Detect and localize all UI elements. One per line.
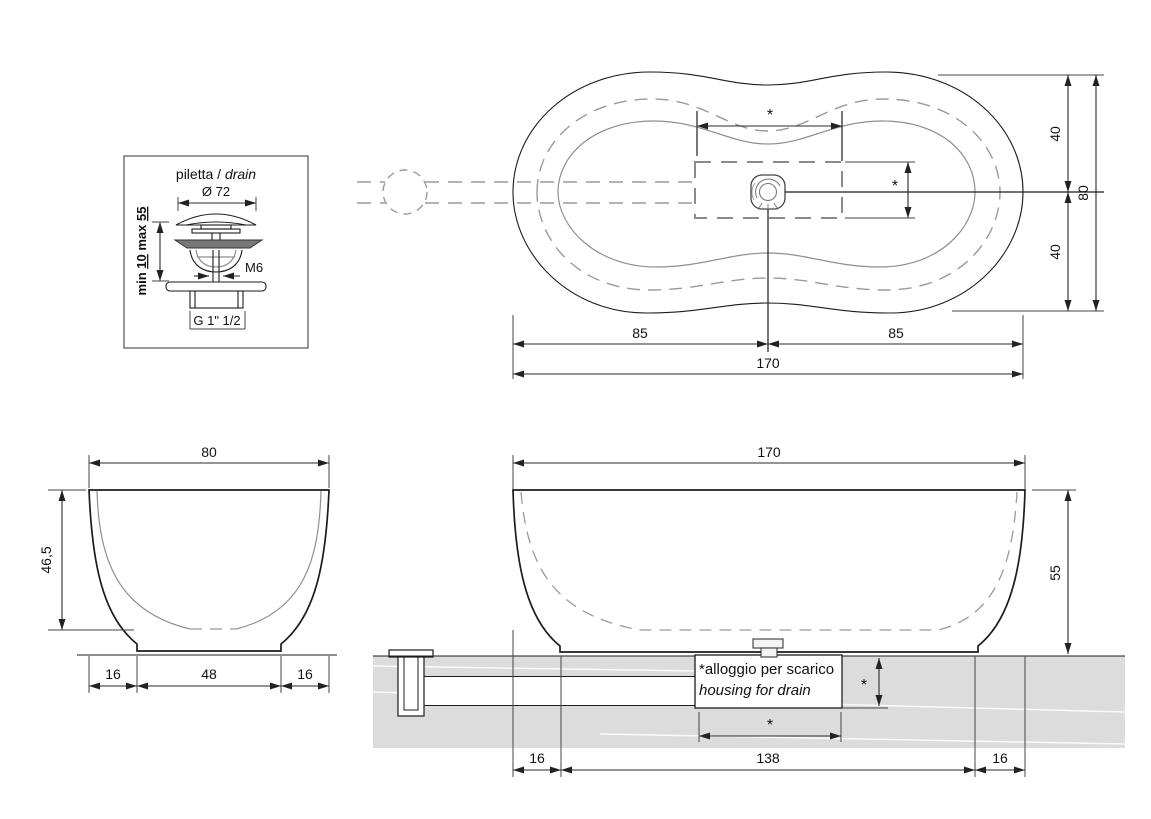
technical-drawing-bathtub: piletta / drain Ø 72 M6 G 1" [0,0,1151,819]
dim-upper-half-label: 40 [1047,126,1063,142]
drain-disc [192,229,240,233]
drain-strainer-outer [190,250,242,272]
thread-label: M6 [245,260,263,275]
dim-total-width-label: 80 [1075,185,1091,201]
top-view: * * 40 40 80 85 85 170 [357,72,1104,379]
dim-side-length-label: 170 [757,444,781,460]
dim-side-left-margin-label: 16 [529,750,545,766]
drain-cap [176,214,256,225]
drain-neck [201,225,231,229]
drain-fitting-upper [753,639,783,648]
dim-end-width-label: 80 [201,444,217,460]
dim-housing-length-side-label: * [767,717,773,734]
dim-housing-width-label: * [892,178,898,195]
tub-end-profile [89,490,329,651]
drawing-svg: piletta / drain Ø 72 M6 G 1" [0,0,1151,819]
housing-note-line1: *alloggio per scarico [699,661,834,678]
dim-total-length-label: 170 [756,355,780,371]
dim-housing-depth-label: * [861,677,867,694]
dim-end-left-margin-label: 16 [105,666,121,682]
drain-bottom-flange [166,282,266,291]
drain-fitting-lower [761,648,777,657]
dim-housing-length-label: * [767,107,773,124]
connection-label: G 1" 1/2 [193,313,240,328]
dim-lower-half-label: 40 [1047,244,1063,260]
dim-side-height-label: 55 [1047,565,1063,581]
dim-side-base-label: 138 [756,750,780,766]
drain-symbol [751,175,785,209]
housing-note-line2: housing for drain [699,682,811,699]
dim-end-base-label: 48 [201,666,217,682]
waste-pipe-vertical [398,656,424,716]
waste-pipe-horizontal [411,677,695,706]
drain-flange [175,240,262,248]
side-view: *alloggio per scarico housing for drain … [373,444,1125,777]
detail-diameter-label: Ø 72 [202,184,230,199]
drain-detail-view: piletta / drain Ø 72 M6 G 1" [124,156,308,348]
detail-title: piletta / drain [176,166,256,182]
dim-end-right-margin-label: 16 [297,666,313,682]
dim-side-right-margin-label: 16 [992,750,1008,766]
end-view: 80 46,5 16 48 16 [38,444,337,693]
waste-outlet-circle [383,170,427,214]
dim-half-left-label: 85 [632,325,648,341]
range-label: min 10 max 55 [134,207,149,296]
dim-end-height-label: 46,5 [38,546,54,573]
drain-strainer-inner [196,250,236,267]
dim-half-right-label: 85 [888,325,904,341]
drain-threaded-body [190,291,243,308]
